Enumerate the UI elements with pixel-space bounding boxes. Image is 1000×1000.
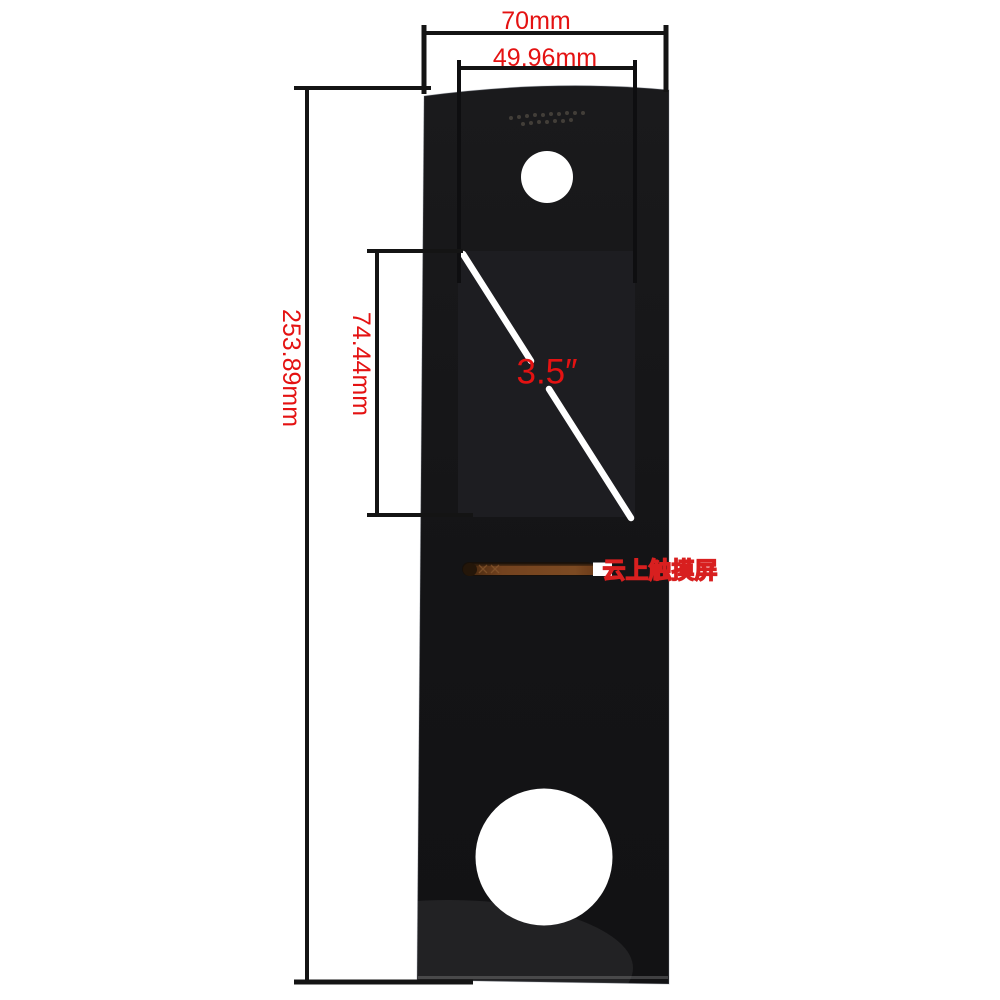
outer-height-label: 253.89mm — [278, 309, 304, 427]
drawing-canvas — [0, 0, 1000, 1000]
product-dimension-photo: 70mm 49.96mm 253.89mm 74.44mm 3.5″ 云上触摸屏 — [0, 0, 1000, 1000]
display-width-label: 49.96mm — [493, 45, 597, 71]
outer-width-label: 70mm — [501, 8, 570, 34]
bottom-edge-highlight — [418, 976, 668, 979]
camera-hole — [521, 151, 573, 203]
diagonal-size-label: 3.5″ — [516, 355, 577, 392]
display-height-label: 74.44mm — [348, 312, 374, 416]
watermark-text: 云上触摸屏 — [603, 551, 718, 585]
lower-circular-cutout — [476, 789, 613, 926]
flex-cable-slot — [462, 562, 612, 576]
